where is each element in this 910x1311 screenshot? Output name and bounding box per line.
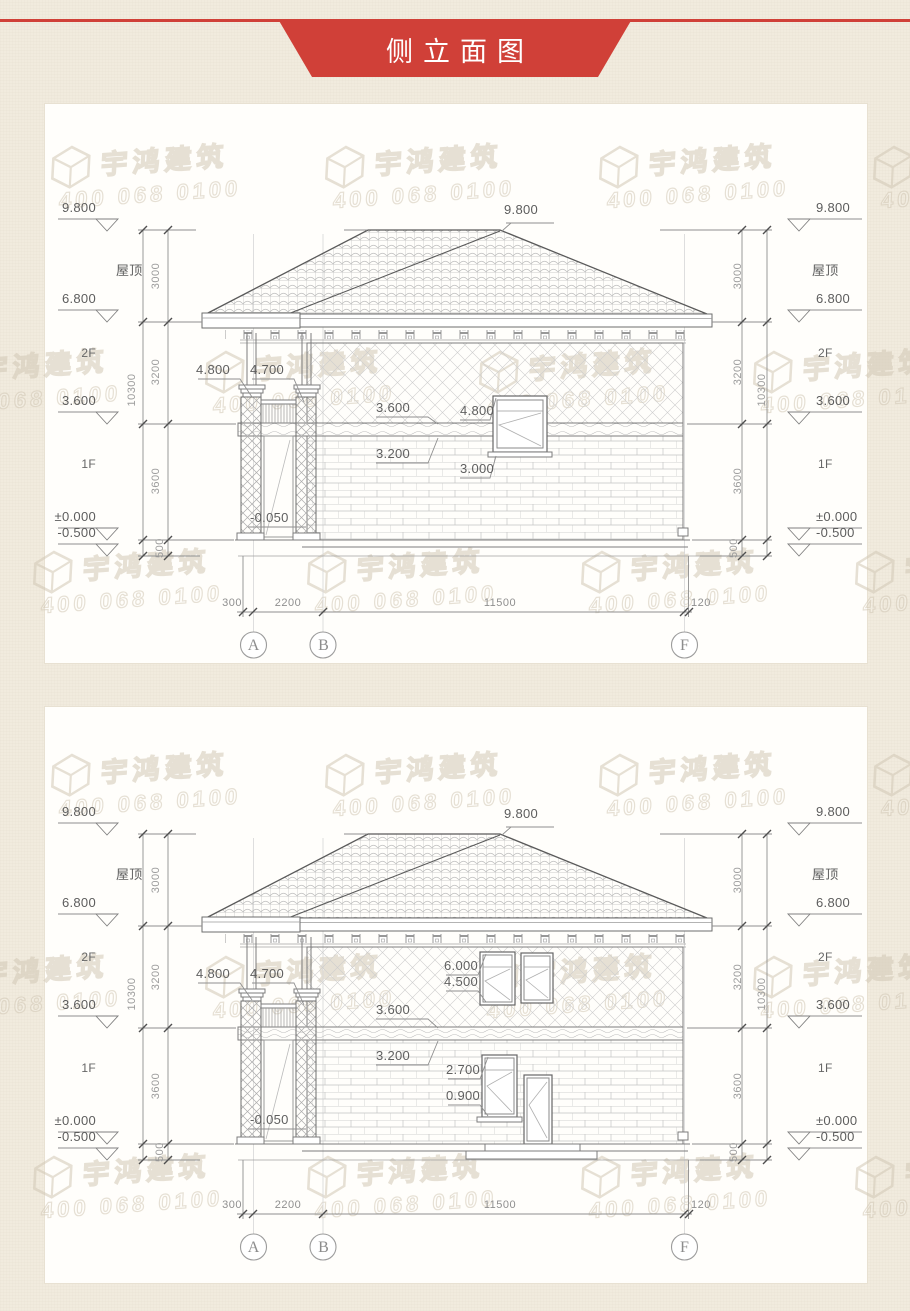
vdim-2f-left: 3200 bbox=[150, 350, 162, 394]
floor-label-2f-left: 2F bbox=[40, 950, 96, 964]
window-sill bbox=[488, 452, 552, 457]
hdim-left: 300 bbox=[202, 1199, 242, 1211]
stair-window bbox=[488, 396, 552, 457]
elevation-label-eave-right: 6.800 bbox=[816, 292, 886, 306]
elevation-label-ground-right: -0.500 bbox=[816, 1130, 886, 1144]
entry-door bbox=[524, 1075, 552, 1144]
entry-steps bbox=[466, 1144, 597, 1159]
elevation-label-ground-right: -0.500 bbox=[816, 526, 886, 540]
porch-eave-fascia bbox=[202, 917, 300, 932]
ridge-elevation-label: 9.800 bbox=[504, 807, 538, 821]
vdim-roof-right: 3000 bbox=[732, 858, 744, 902]
porch-eave-fascia bbox=[202, 313, 300, 328]
annotation-slab: 3.200 bbox=[376, 446, 410, 461]
vdim-total-right: 10300 bbox=[756, 368, 768, 412]
window-sill bbox=[477, 1117, 522, 1122]
ridge-elevation-label: 9.800 bbox=[504, 203, 538, 217]
vdim-total-right: 10300 bbox=[756, 972, 768, 1016]
vdim-plinth-right: 500 bbox=[728, 526, 740, 570]
roof bbox=[206, 834, 707, 918]
elevation-label-eave-right: 6.800 bbox=[816, 896, 886, 910]
window-1f bbox=[477, 1055, 522, 1122]
roof-label-left: 屋顶 bbox=[116, 868, 143, 882]
elevation-label-mid-right: 3.600 bbox=[816, 998, 886, 1012]
annotation-window-sill: 3.000 bbox=[460, 461, 494, 476]
hdim-right: 120 bbox=[691, 1199, 727, 1211]
floor-label-2f-left: 2F bbox=[40, 346, 96, 360]
vdim-roof-left: 3000 bbox=[150, 254, 162, 298]
elevation-label-zero-left: ±0.000 bbox=[40, 510, 96, 524]
elevation-label-mid-left: 3.600 bbox=[40, 394, 96, 408]
floor-label-1f-right: 1F bbox=[818, 1061, 833, 1075]
hdim-right: 120 bbox=[691, 597, 727, 609]
hdim-porch: 2200 bbox=[263, 1199, 313, 1211]
corner-ledge bbox=[678, 528, 688, 536]
axis-bubble-b: B bbox=[310, 637, 337, 655]
annotation-level2: 3.600 bbox=[376, 400, 410, 415]
elevation-label-zero-right: ±0.000 bbox=[816, 1114, 886, 1128]
vdim-1f-left: 3600 bbox=[150, 1064, 162, 1108]
plinth-lines bbox=[235, 540, 690, 547]
axis-bubble-a: A bbox=[240, 637, 267, 655]
vdim-roof-right: 3000 bbox=[732, 254, 744, 298]
annotation-porch-top: 4.800 bbox=[196, 966, 230, 981]
annotation-slab: 3.200 bbox=[376, 1048, 410, 1063]
annotation-porch-floor: -0.050 bbox=[250, 1112, 289, 1127]
balcony-balusters bbox=[263, 1008, 293, 1027]
title-banner: 侧立面图 bbox=[250, 14, 660, 80]
annotation-window2f-sill: 4.500 bbox=[444, 974, 478, 989]
balcony-rail bbox=[261, 400, 296, 404]
dentil-band bbox=[225, 330, 686, 339]
balcony-balusters bbox=[263, 404, 293, 423]
eave-fascia bbox=[250, 314, 712, 327]
elevation-label-peak-left: 9.800 bbox=[40, 805, 96, 819]
axis-bubble-a: A bbox=[240, 1239, 267, 1257]
vdim-plinth-left: 500 bbox=[154, 1130, 166, 1174]
roof-label-left: 屋顶 bbox=[116, 264, 143, 278]
annotation-window1f-sill: 0.900 bbox=[446, 1088, 480, 1103]
annotation-porch-floor: -0.050 bbox=[250, 510, 289, 525]
vdim-1f-right: 3600 bbox=[732, 459, 744, 503]
hdim-porch: 2200 bbox=[263, 597, 313, 609]
floor-label-2f-right: 2F bbox=[818, 950, 833, 964]
balcony-rail bbox=[261, 1004, 296, 1008]
floor-label-2f-right: 2F bbox=[818, 346, 833, 360]
porch-columns-upper bbox=[247, 333, 311, 385]
plinth-lines bbox=[235, 1144, 690, 1151]
page: 宇鸿建筑 400 068 0100 宇鸿建筑 400 068 0100 宇鸿建筑… bbox=[0, 0, 910, 1311]
hdim-main: 11500 bbox=[472, 597, 528, 609]
elevation-label-peak-right: 9.800 bbox=[816, 201, 886, 215]
floor-label-1f-left: 1F bbox=[40, 457, 96, 471]
vdim-total-left: 10300 bbox=[126, 368, 138, 412]
elevation-label-ground-left: -0.500 bbox=[40, 526, 96, 540]
vdim-total-left: 10300 bbox=[126, 972, 138, 1016]
elevation-label-ground-left: -0.500 bbox=[40, 1130, 96, 1144]
vdim-2f-left: 3200 bbox=[150, 955, 162, 999]
vdim-1f-right: 3600 bbox=[732, 1064, 744, 1108]
hdim-left: 300 bbox=[202, 597, 242, 609]
annotation-beam: 4.700 bbox=[250, 966, 284, 981]
page-title: 侧立面图 bbox=[376, 30, 534, 69]
elevation-label-peak-left: 9.800 bbox=[40, 201, 96, 215]
roof-label-right: 屋顶 bbox=[812, 868, 839, 882]
annotation-window2f-top: 6.000 bbox=[444, 958, 478, 973]
annotation-level2: 3.600 bbox=[376, 1002, 410, 1017]
axis-bubble-b: B bbox=[310, 1239, 337, 1257]
vdim-plinth-right: 500 bbox=[728, 1130, 740, 1174]
porch-columns-upper bbox=[247, 937, 311, 989]
elevation-linework bbox=[0, 0, 910, 1311]
elevation-label-mid-right: 3.600 bbox=[816, 394, 886, 408]
elevation-label-zero-right: ±0.000 bbox=[816, 510, 886, 524]
porch-pier-right bbox=[296, 397, 316, 540]
floor-label-1f-right: 1F bbox=[818, 457, 833, 471]
dentil-band bbox=[225, 934, 686, 943]
window-2f-right bbox=[521, 953, 553, 1003]
eave-fascia bbox=[250, 918, 712, 931]
roof bbox=[206, 230, 707, 314]
vdim-2f-right: 3200 bbox=[732, 955, 744, 999]
elevation-label-eave-left: 6.800 bbox=[40, 292, 96, 306]
roof-label-right: 屋顶 bbox=[812, 264, 839, 278]
axis-bubble-f: F bbox=[671, 1239, 698, 1257]
axis-bubble-f: F bbox=[671, 637, 698, 655]
vdim-2f-right: 3200 bbox=[732, 350, 744, 394]
elevation-label-eave-left: 6.800 bbox=[40, 896, 96, 910]
window-2f-left bbox=[480, 952, 515, 1005]
annotation-window-top: 4.800 bbox=[460, 403, 494, 418]
corner-ledge bbox=[678, 1132, 688, 1140]
elevation-label-peak-right: 9.800 bbox=[816, 805, 886, 819]
annotation-window1f-top: 2.700 bbox=[446, 1062, 480, 1077]
annotation-beam: 4.700 bbox=[250, 362, 284, 377]
porch-pier-right bbox=[296, 1001, 316, 1144]
hdim-main: 11500 bbox=[472, 1199, 528, 1211]
elevation-label-mid-left: 3.600 bbox=[40, 998, 96, 1012]
floor-label-1f-left: 1F bbox=[40, 1061, 96, 1075]
vdim-roof-left: 3000 bbox=[150, 858, 162, 902]
vdim-plinth-left: 500 bbox=[154, 526, 166, 570]
annotation-porch-top: 4.800 bbox=[196, 362, 230, 377]
elevation-label-zero-left: ±0.000 bbox=[40, 1114, 96, 1128]
vdim-1f-left: 3600 bbox=[150, 459, 162, 503]
